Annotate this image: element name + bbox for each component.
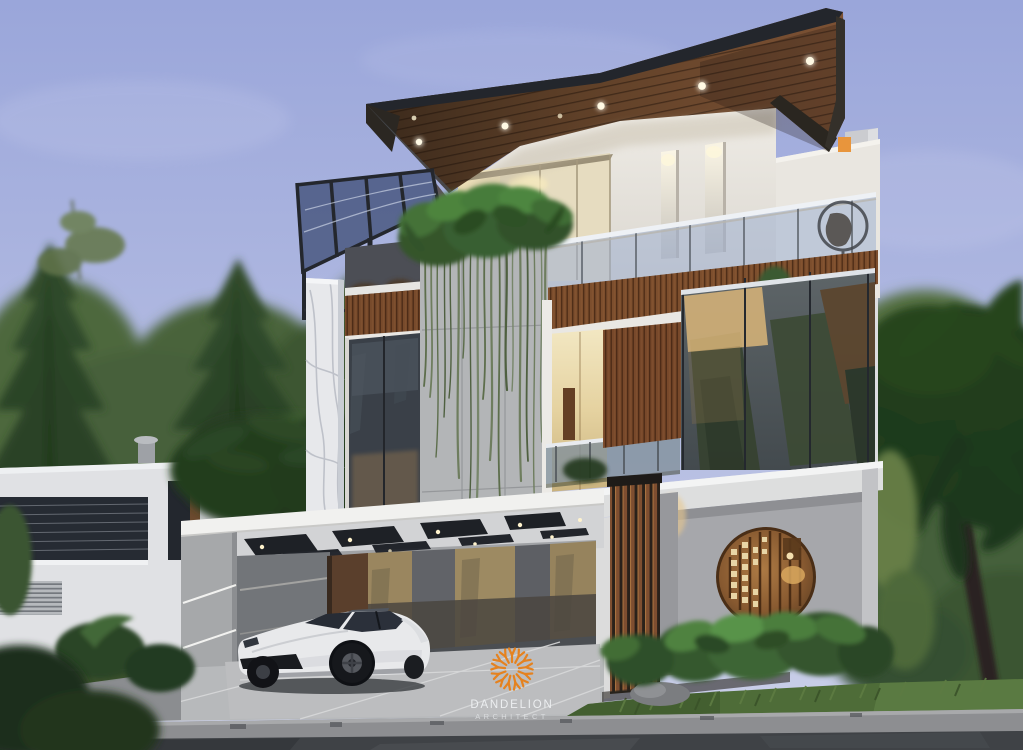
- svg-text:ARCHITECT: ARCHITECT: [475, 712, 549, 721]
- svg-text:DANDELION: DANDELION: [470, 699, 553, 711]
